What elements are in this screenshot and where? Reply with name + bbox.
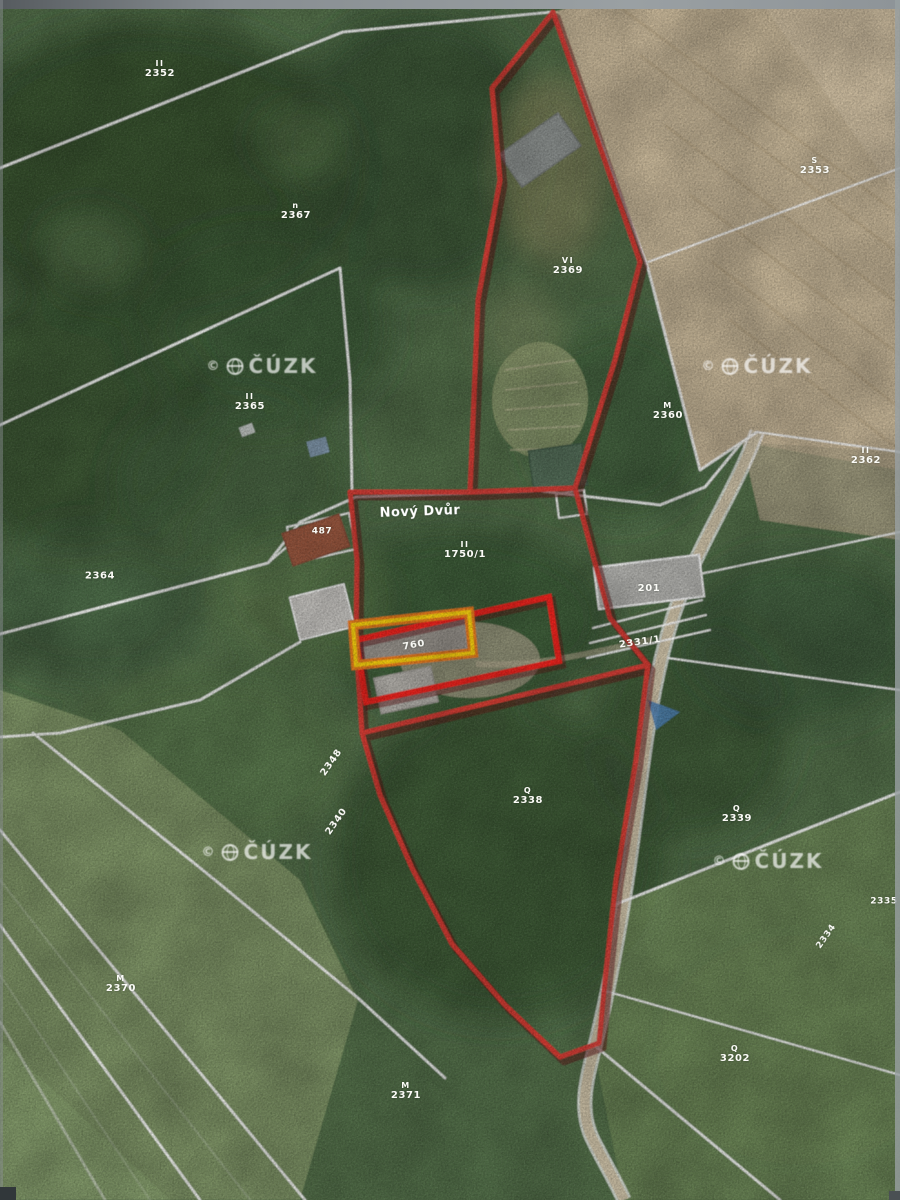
cuzk-watermark: © ČÚZK	[202, 840, 313, 864]
photo-edge-left	[0, 0, 3, 1200]
cuzk-watermark: © ČÚZK	[702, 354, 813, 378]
parcel-label: n2367	[281, 202, 311, 222]
place-name-label: Nový Dvůr	[379, 503, 460, 521]
building-label: 487	[312, 527, 333, 536]
parcel-label: II2362	[851, 447, 881, 467]
watermark-text: ČÚZK	[249, 354, 318, 378]
copyright-icon: ©	[202, 845, 217, 860]
watermark-text: ČÚZK	[744, 354, 813, 378]
watermark-text: ČÚZK	[244, 840, 313, 864]
globe-icon	[733, 853, 750, 870]
photo-edge-right	[895, 0, 900, 1200]
parcel-label: Q3202	[720, 1045, 750, 1065]
parcel-label: M2370	[106, 975, 136, 995]
copyright-icon: ©	[713, 854, 728, 869]
photo-corner-bottom-right	[889, 1191, 900, 1200]
building-label: 201	[638, 584, 661, 595]
parcel-label: 2364	[85, 570, 115, 582]
globe-icon	[722, 358, 739, 375]
parcel-label: VI2369	[553, 257, 583, 277]
cadastral-aerial-map[interactable]: II2352 n2367 S2353 VI2369 II2365 M2360 I…	[0, 0, 900, 1200]
parcel-label: II2365	[235, 393, 265, 413]
watermark-text: ČÚZK	[755, 849, 824, 873]
parcel-label: S2353	[800, 157, 830, 177]
parcel-label: II1750/1	[444, 541, 486, 561]
cuzk-watermark: © ČÚZK	[207, 354, 318, 378]
photo-edge-top	[0, 0, 900, 9]
parcel-label: Q2339	[722, 805, 752, 825]
parcel-label: M2360	[653, 402, 683, 422]
parcel-label: Q2338	[513, 787, 543, 807]
cuzk-watermark: © ČÚZK	[713, 849, 824, 873]
photo-corner-bottom-left	[0, 1187, 16, 1200]
parcel-label: M2371	[391, 1082, 421, 1102]
map-graphics	[0, 0, 900, 1200]
globe-icon	[227, 358, 244, 375]
copyright-icon: ©	[702, 359, 717, 374]
grain-light	[0, 0, 900, 1200]
copyright-icon: ©	[207, 359, 222, 374]
parcel-label: II2352	[145, 60, 175, 80]
globe-icon	[222, 844, 239, 861]
parcel-label: 2335	[870, 897, 897, 906]
